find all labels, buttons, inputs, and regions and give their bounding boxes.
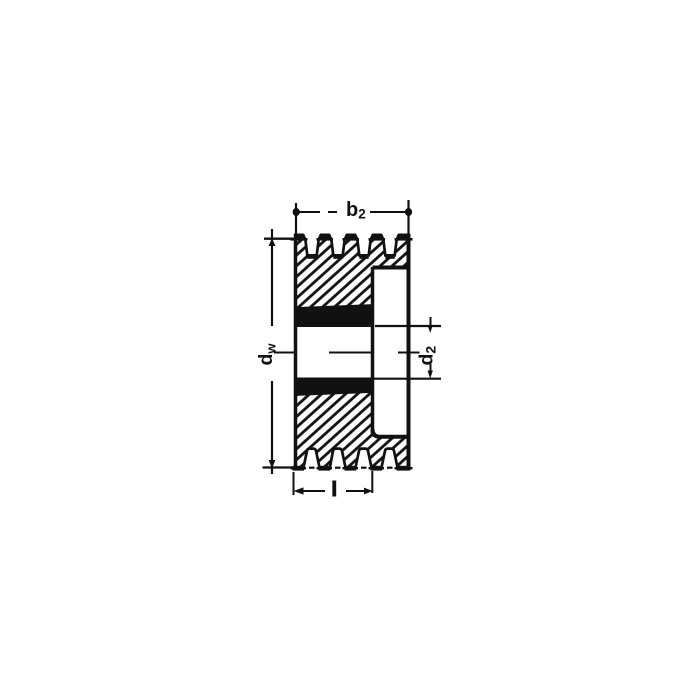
svg-text:l: l xyxy=(332,479,338,501)
